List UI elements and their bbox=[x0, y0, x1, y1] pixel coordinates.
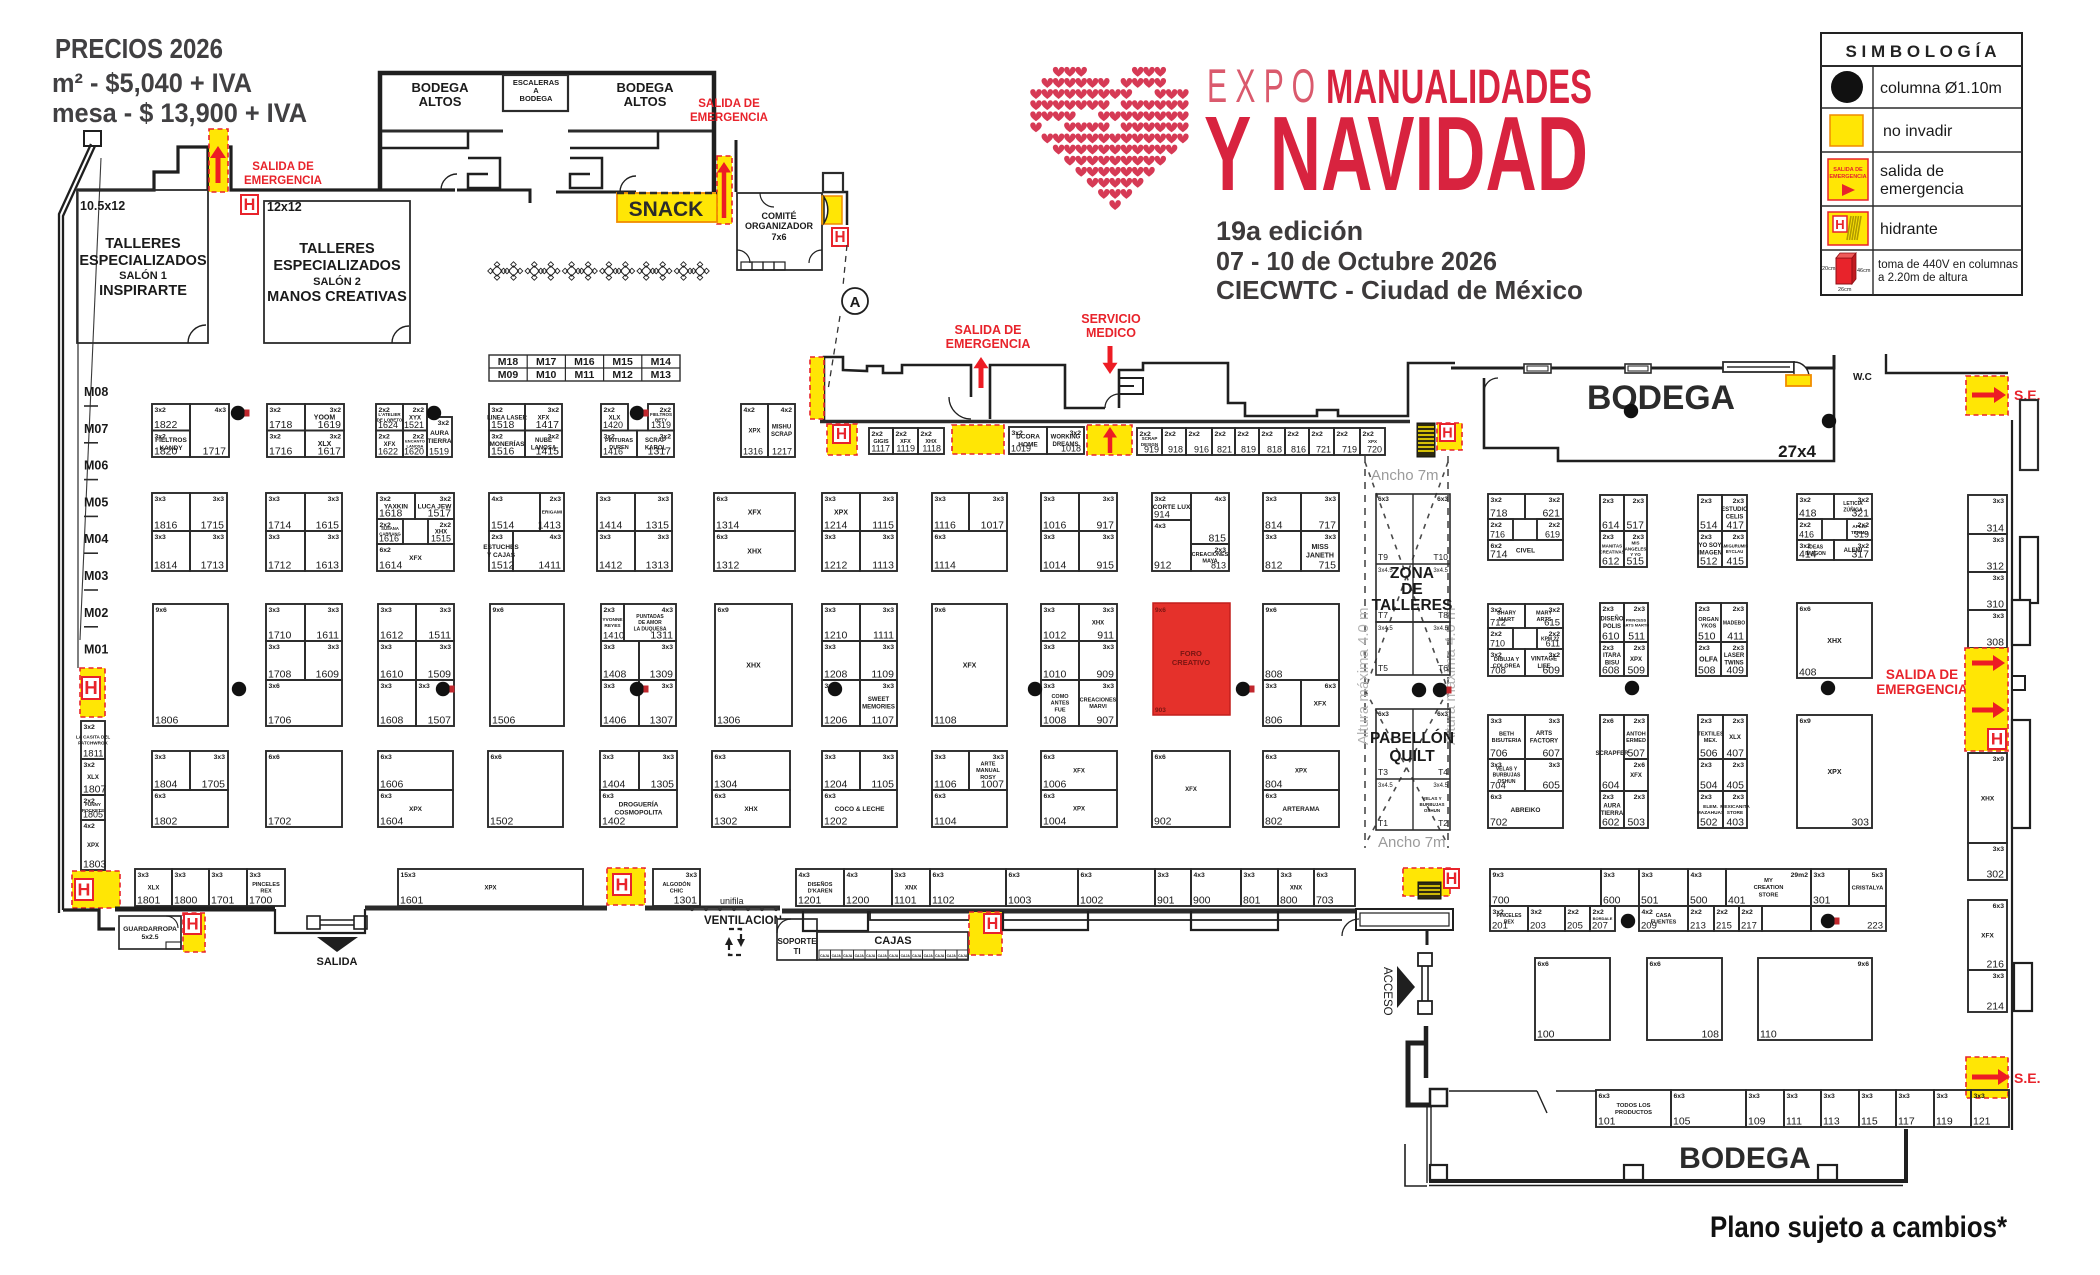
svg-text:6x3: 6x3 bbox=[1044, 754, 1056, 761]
svg-text:2x3: 2x3 bbox=[1603, 794, 1615, 801]
svg-text:806: 806 bbox=[1265, 715, 1283, 727]
svg-text:4x2: 4x2 bbox=[781, 407, 793, 414]
svg-text:SALIDA DE: SALIDA DE bbox=[955, 323, 1022, 337]
svg-text:3x3: 3x3 bbox=[1937, 1093, 1949, 1100]
svg-text:514: 514 bbox=[1700, 520, 1718, 532]
svg-text:6x6: 6x6 bbox=[269, 754, 281, 761]
svg-text:109: 109 bbox=[1748, 1116, 1766, 1128]
svg-text:2x3: 2x3 bbox=[1733, 794, 1745, 801]
svg-text:3x3: 3x3 bbox=[935, 496, 947, 503]
svg-text:LASER: LASER bbox=[1724, 653, 1745, 659]
svg-text:517: 517 bbox=[1626, 520, 1644, 532]
svg-text:STORE: STORE bbox=[1759, 892, 1779, 898]
svg-text:1118: 1118 bbox=[922, 444, 941, 454]
svg-text:213: 213 bbox=[1690, 921, 1706, 932]
svg-text:XFX: XFX bbox=[748, 509, 762, 516]
svg-text:1816: 1816 bbox=[154, 520, 178, 532]
svg-text:3x3: 3x3 bbox=[328, 607, 340, 614]
svg-text:6x3: 6x3 bbox=[1317, 872, 1329, 879]
svg-text:217: 217 bbox=[1741, 921, 1757, 932]
svg-text:6x3: 6x3 bbox=[1325, 683, 1337, 690]
svg-text:ORGANIZADOR: ORGANIZADOR bbox=[745, 221, 813, 231]
svg-text:1807: 1807 bbox=[83, 784, 107, 796]
svg-text:GUARDARROPA: GUARDARROPA bbox=[123, 926, 177, 933]
svg-text:XPX: XPX bbox=[1073, 807, 1085, 813]
svg-text:3x4.5: 3x4.5 bbox=[1378, 783, 1393, 789]
svg-text:ERMED: ERMED bbox=[1626, 738, 1646, 744]
svg-text:3x3: 3x3 bbox=[1158, 872, 1170, 879]
svg-text:CAJA: CAJA bbox=[947, 954, 957, 958]
svg-text:TODOS LOS: TODOS LOS bbox=[1616, 1103, 1650, 1109]
svg-text:H: H bbox=[1991, 730, 2003, 749]
svg-text:3x2: 3x2 bbox=[84, 724, 96, 731]
svg-text:BODEGA: BODEGA bbox=[616, 80, 674, 95]
svg-text:3x3: 3x3 bbox=[993, 496, 1005, 503]
svg-text:1018: 1018 bbox=[1061, 444, 1081, 454]
svg-text:719: 719 bbox=[1342, 445, 1357, 455]
svg-text:4x3: 4x3 bbox=[550, 534, 562, 541]
svg-text:512: 512 bbox=[1700, 556, 1718, 568]
svg-text:2x2: 2x2 bbox=[1238, 431, 1250, 438]
svg-text:6x3: 6x3 bbox=[935, 793, 947, 800]
svg-text:EMERGENCIA: EMERGENCIA bbox=[244, 175, 322, 187]
svg-text:4x3: 4x3 bbox=[847, 872, 859, 879]
svg-text:812: 812 bbox=[1265, 560, 1283, 572]
svg-text:704: 704 bbox=[1490, 781, 1506, 792]
svg-text:3x3: 3x3 bbox=[1044, 683, 1056, 690]
svg-text:207: 207 bbox=[1592, 921, 1608, 932]
svg-text:1717: 1717 bbox=[203, 446, 227, 458]
svg-text:M07: M07 bbox=[84, 422, 108, 436]
svg-text:1615: 1615 bbox=[316, 520, 340, 532]
svg-text:Ancho 7m: Ancho 7m bbox=[1378, 834, 1446, 851]
svg-text:XLX: XLX bbox=[87, 775, 99, 781]
svg-text:6x3: 6x3 bbox=[1437, 496, 1448, 503]
svg-text:REYES: REYES bbox=[604, 623, 621, 629]
svg-text:3x3: 3x3 bbox=[1103, 607, 1115, 614]
svg-text:9x3: 9x3 bbox=[1493, 872, 1505, 879]
svg-text:6x3: 6x3 bbox=[1993, 903, 2005, 910]
svg-text:M17: M17 bbox=[536, 356, 557, 368]
svg-text:H: H bbox=[836, 426, 847, 443]
svg-text:1206: 1206 bbox=[824, 715, 848, 727]
svg-text:H: H bbox=[244, 196, 256, 214]
svg-text:BURBUJAS: BURBUJAS bbox=[1493, 773, 1521, 779]
svg-text:1822: 1822 bbox=[154, 419, 178, 431]
svg-text:PABELLÓN: PABELLÓN bbox=[1370, 729, 1454, 747]
svg-text:2x3: 2x3 bbox=[604, 607, 616, 614]
svg-text:808: 808 bbox=[1265, 669, 1283, 681]
svg-text:7x6: 7x6 bbox=[771, 232, 786, 242]
svg-text:CAJA: CAJA bbox=[958, 954, 968, 958]
svg-text:TIERRA: TIERRA bbox=[427, 438, 452, 445]
svg-text:1019: 1019 bbox=[1011, 444, 1031, 454]
svg-text:1701: 1701 bbox=[211, 895, 235, 907]
svg-text:FIELTROS: FIELTROS bbox=[650, 412, 672, 417]
svg-text:FUE: FUE bbox=[1055, 708, 1066, 714]
svg-text:1801: 1801 bbox=[137, 895, 161, 907]
svg-text:M02: M02 bbox=[84, 606, 108, 620]
svg-text:1820: 1820 bbox=[154, 446, 178, 458]
svg-text:3x3: 3x3 bbox=[1549, 718, 1561, 725]
svg-text:3x3: 3x3 bbox=[1044, 496, 1056, 503]
svg-text:MEMORIES: MEMORIES bbox=[862, 705, 895, 711]
svg-text:2x2: 2x2 bbox=[1312, 431, 1324, 438]
svg-text:MANITAS: MANITAS bbox=[1602, 544, 1622, 549]
svg-text:303: 303 bbox=[1851, 817, 1869, 829]
svg-text:3x3: 3x3 bbox=[662, 683, 674, 690]
svg-text:ELEM.: ELEM. bbox=[1703, 804, 1718, 810]
svg-text:119: 119 bbox=[1936, 1116, 1953, 1128]
svg-text:CASA: CASA bbox=[1656, 913, 1672, 919]
svg-text:415: 415 bbox=[1726, 556, 1744, 568]
svg-text:1104: 1104 bbox=[934, 816, 957, 828]
svg-text:506: 506 bbox=[1700, 748, 1718, 760]
svg-text:1518: 1518 bbox=[491, 419, 515, 431]
svg-text:PINCELES: PINCELES bbox=[252, 882, 280, 888]
svg-text:ANTES: ANTES bbox=[1051, 701, 1070, 707]
svg-text:312: 312 bbox=[1986, 561, 2004, 573]
svg-text:T3: T3 bbox=[1378, 767, 1388, 777]
svg-text:209: 209 bbox=[1641, 921, 1657, 932]
svg-text:XHX: XHX bbox=[1981, 795, 1995, 802]
svg-text:1007: 1007 bbox=[981, 779, 1005, 791]
svg-text:2x2: 2x2 bbox=[1215, 431, 1227, 438]
svg-text:1408: 1408 bbox=[603, 669, 627, 681]
svg-text:ACCESO: ACCESO bbox=[1381, 967, 1393, 1016]
svg-text:MISHU: MISHU bbox=[772, 425, 791, 431]
svg-text:XNX: XNX bbox=[905, 886, 917, 892]
svg-text:2x2: 2x2 bbox=[1549, 522, 1561, 529]
svg-text:M14: M14 bbox=[651, 356, 672, 368]
svg-text:CREATIVAS: CREATIVAS bbox=[1599, 549, 1624, 554]
svg-text:1416: 1416 bbox=[603, 447, 623, 457]
svg-text:1406: 1406 bbox=[603, 715, 627, 727]
svg-text:1619: 1619 bbox=[318, 419, 342, 431]
svg-text:608: 608 bbox=[1602, 665, 1620, 677]
svg-text:3x3: 3x3 bbox=[1266, 683, 1278, 690]
svg-text:CAJA: CAJA bbox=[924, 954, 934, 958]
svg-text:S I M B O L O G Í A: S I M B O L O G Í A bbox=[1845, 42, 1996, 61]
svg-text:m² - $5,040 + IVA: m² - $5,040 + IVA bbox=[52, 68, 252, 98]
svg-text:717: 717 bbox=[1318, 520, 1336, 532]
svg-text:H: H bbox=[78, 879, 91, 899]
svg-text:FORO: FORO bbox=[1180, 649, 1202, 658]
svg-text:Ancho 7m: Ancho 7m bbox=[1371, 467, 1439, 484]
svg-text:1413: 1413 bbox=[538, 520, 562, 532]
svg-text:SWEET: SWEET bbox=[868, 697, 890, 703]
svg-text:610: 610 bbox=[1602, 631, 1620, 643]
svg-text:4x3: 4x3 bbox=[1215, 496, 1227, 503]
svg-text:XFX: XFX bbox=[1073, 769, 1085, 775]
svg-text:XFX: XFX bbox=[1185, 787, 1197, 793]
svg-text:409: 409 bbox=[1726, 665, 1744, 677]
svg-text:3x2: 3x2 bbox=[1800, 497, 1812, 504]
svg-text:3x3: 3x3 bbox=[1244, 872, 1256, 879]
svg-text:3x3: 3x3 bbox=[883, 496, 895, 503]
svg-text:1016: 1016 bbox=[1043, 520, 1067, 532]
svg-text:3x3: 3x3 bbox=[1325, 496, 1337, 503]
svg-text:1506: 1506 bbox=[492, 715, 516, 727]
svg-text:Altura máxima 4.0 m: Altura máxima 4.0 m bbox=[1355, 607, 1372, 745]
svg-text:1307: 1307 bbox=[650, 715, 674, 727]
svg-text:QUILT: QUILT bbox=[1389, 748, 1435, 765]
svg-text:1803: 1803 bbox=[83, 859, 107, 871]
svg-text:914: 914 bbox=[1154, 510, 1170, 521]
svg-text:3x3: 3x3 bbox=[155, 754, 167, 761]
svg-text:2x2: 2x2 bbox=[1691, 909, 1703, 916]
svg-text:4x3: 4x3 bbox=[1155, 523, 1167, 530]
svg-text:3x3: 3x3 bbox=[212, 872, 224, 879]
svg-text:3x3: 3x3 bbox=[269, 534, 281, 541]
svg-text:716: 716 bbox=[1490, 530, 1505, 540]
svg-text:4x3: 4x3 bbox=[1691, 872, 1703, 879]
svg-text:407: 407 bbox=[1726, 748, 1744, 760]
svg-text:1716: 1716 bbox=[269, 446, 293, 458]
svg-text:1102: 1102 bbox=[932, 895, 955, 907]
svg-text:3x3: 3x3 bbox=[825, 607, 837, 614]
svg-text:3x3: 3x3 bbox=[1993, 973, 2005, 980]
svg-text:SALIDA DE: SALIDA DE bbox=[1833, 167, 1863, 173]
svg-text:907: 907 bbox=[1096, 715, 1114, 727]
svg-text:3x2: 3x2 bbox=[548, 407, 560, 414]
svg-text:ZONA: ZONA bbox=[1390, 565, 1434, 582]
svg-text:DISEÑOS: DISEÑOS bbox=[808, 881, 833, 888]
svg-text:900: 900 bbox=[1193, 895, 1211, 907]
svg-text:3x3: 3x3 bbox=[175, 872, 187, 879]
svg-text:M04: M04 bbox=[84, 532, 108, 546]
svg-text:1012: 1012 bbox=[1043, 630, 1067, 642]
svg-text:3x3: 3x3 bbox=[1281, 872, 1293, 879]
svg-text:H: H bbox=[1835, 217, 1844, 232]
svg-text:2x3: 2x3 bbox=[1603, 645, 1615, 652]
svg-text:1417: 1417 bbox=[536, 419, 560, 431]
svg-text:100: 100 bbox=[1537, 1029, 1555, 1041]
svg-text:M03: M03 bbox=[84, 569, 108, 583]
svg-text:1515: 1515 bbox=[431, 534, 451, 544]
svg-text:801: 801 bbox=[1243, 895, 1261, 907]
svg-text:3x3: 3x3 bbox=[883, 607, 895, 614]
svg-text:SALIDA: SALIDA bbox=[317, 956, 358, 968]
svg-text:708: 708 bbox=[1490, 666, 1506, 677]
svg-text:MAZAHUAS: MAZAHUAS bbox=[1697, 810, 1725, 816]
svg-text:CAJA: CAJA bbox=[878, 954, 888, 958]
svg-text:201: 201 bbox=[1492, 921, 1508, 932]
svg-text:6x3: 6x3 bbox=[825, 793, 837, 800]
svg-text:H: H bbox=[84, 677, 98, 698]
svg-text:3x3: 3x3 bbox=[1103, 644, 1115, 651]
svg-text:FIELTROS: FIELTROS bbox=[155, 437, 187, 444]
svg-text:XPX: XPX bbox=[409, 806, 423, 813]
svg-text:2x3: 2x3 bbox=[1733, 606, 1745, 613]
svg-text:1700: 1700 bbox=[249, 895, 273, 907]
svg-text:911: 911 bbox=[1097, 630, 1114, 642]
svg-text:YO SOY: YO SOY bbox=[1698, 543, 1721, 549]
svg-text:TEXTILES: TEXTILES bbox=[1697, 731, 1724, 737]
svg-text:46cm: 46cm bbox=[1857, 268, 1871, 274]
svg-text:COMO: COMO bbox=[1051, 694, 1069, 700]
svg-text:XHX: XHX bbox=[1092, 621, 1104, 627]
svg-text:3x3: 3x3 bbox=[993, 754, 1005, 761]
svg-text:1420: 1420 bbox=[603, 420, 623, 430]
svg-text:MEDICO: MEDICO bbox=[1086, 326, 1136, 340]
svg-text:toma de 440V en columnas: toma de 440V en columnas bbox=[1878, 259, 2018, 271]
svg-text:612: 612 bbox=[1602, 556, 1620, 568]
svg-text:2x3: 2x3 bbox=[1699, 645, 1711, 652]
svg-text:YKOS: YKOS bbox=[1701, 624, 1717, 630]
svg-text:1312: 1312 bbox=[716, 560, 740, 572]
svg-text:3x2: 3x2 bbox=[380, 496, 392, 503]
svg-text:ANGELES: ANGELES bbox=[1625, 546, 1647, 551]
svg-text:3x3: 3x3 bbox=[328, 534, 340, 541]
svg-text:3x3: 3x3 bbox=[1993, 498, 2005, 505]
svg-text:MY: MY bbox=[1764, 878, 1773, 884]
svg-text:1415: 1415 bbox=[536, 446, 560, 458]
svg-text:CAJA: CAJA bbox=[855, 954, 865, 958]
svg-text:ORGAN: ORGAN bbox=[1698, 617, 1719, 623]
svg-text:3x3: 3x3 bbox=[250, 872, 262, 879]
svg-text:1514: 1514 bbox=[491, 520, 515, 532]
svg-text:3x3: 3x3 bbox=[603, 754, 615, 761]
svg-text:6x6: 6x6 bbox=[491, 754, 503, 761]
svg-text:XLX: XLX bbox=[1729, 735, 1741, 741]
svg-text:2x3: 2x3 bbox=[550, 496, 562, 503]
svg-text:1119: 1119 bbox=[896, 444, 915, 454]
svg-text:SERVICIO: SERVICIO bbox=[1081, 312, 1141, 326]
svg-text:105: 105 bbox=[1673, 1116, 1691, 1128]
svg-text:H: H bbox=[834, 229, 845, 246]
svg-text:1802: 1802 bbox=[154, 816, 178, 828]
svg-text:3x3: 3x3 bbox=[895, 872, 907, 879]
svg-text:321: 321 bbox=[1851, 508, 1869, 520]
svg-text:4x2: 4x2 bbox=[1642, 909, 1654, 916]
svg-text:1612: 1612 bbox=[380, 630, 404, 642]
svg-text:3x3: 3x3 bbox=[213, 496, 225, 503]
svg-text:1107: 1107 bbox=[871, 715, 894, 727]
svg-text:CIECWTC - Ciudad de México: CIECWTC - Ciudad de México bbox=[1216, 275, 1583, 305]
svg-text:1101: 1101 bbox=[894, 895, 917, 907]
svg-text:OLFA: OLFA bbox=[1699, 656, 1718, 663]
svg-text:1521: 1521 bbox=[404, 420, 424, 430]
svg-text:3x3: 3x3 bbox=[440, 607, 452, 614]
svg-text:M05: M05 bbox=[84, 495, 108, 509]
svg-text:111: 111 bbox=[1786, 1116, 1802, 1128]
svg-text:1620: 1620 bbox=[404, 447, 424, 457]
svg-text:619: 619 bbox=[1545, 530, 1560, 540]
svg-text:3x3: 3x3 bbox=[1642, 872, 1654, 879]
svg-text:3x3: 3x3 bbox=[1814, 872, 1826, 879]
svg-text:3x2: 3x2 bbox=[440, 496, 452, 503]
svg-text:S.E.: S.E. bbox=[2014, 1070, 2040, 1086]
svg-text:EMERGENCIA: EMERGENCIA bbox=[690, 112, 768, 124]
svg-text:3x3: 3x3 bbox=[663, 754, 675, 761]
svg-text:3x3: 3x3 bbox=[1044, 607, 1056, 614]
svg-text:6x6: 6x6 bbox=[1538, 961, 1550, 968]
svg-text:M13: M13 bbox=[651, 369, 672, 381]
svg-text:6x3: 6x3 bbox=[1491, 794, 1503, 801]
svg-text:1708: 1708 bbox=[268, 669, 292, 681]
svg-text:1811: 1811 bbox=[83, 749, 103, 760]
svg-text:OSHUN: OSHUN bbox=[1424, 808, 1440, 813]
svg-text:1705: 1705 bbox=[202, 779, 226, 791]
svg-text:3x6: 3x6 bbox=[269, 683, 281, 690]
svg-text:DE: DE bbox=[1401, 581, 1423, 598]
svg-text:4x2: 4x2 bbox=[84, 823, 96, 830]
svg-text:710: 710 bbox=[1490, 639, 1505, 649]
svg-text:712: 712 bbox=[1490, 618, 1506, 629]
svg-text:1509: 1509 bbox=[428, 669, 452, 681]
svg-text:6x3: 6x3 bbox=[603, 793, 615, 800]
svg-text:1115: 1115 bbox=[872, 520, 894, 532]
svg-text:1003: 1003 bbox=[1008, 895, 1032, 907]
svg-text:1311: 1311 bbox=[650, 630, 673, 642]
svg-text:4x3: 4x3 bbox=[492, 496, 504, 503]
svg-text:SALIDA DE: SALIDA DE bbox=[252, 161, 314, 173]
svg-text:XHX: XHX bbox=[744, 806, 758, 813]
svg-text:802: 802 bbox=[1265, 816, 1283, 828]
svg-text:3x3: 3x3 bbox=[883, 534, 895, 541]
svg-text:2x3: 2x3 bbox=[1603, 534, 1615, 541]
svg-text:YVONNE: YVONNE bbox=[602, 617, 623, 623]
svg-text:3x3: 3x3 bbox=[1993, 846, 2005, 853]
svg-text:3x2: 3x2 bbox=[270, 407, 282, 414]
svg-text:3x3: 3x3 bbox=[1103, 683, 1115, 690]
svg-text:2x3: 2x3 bbox=[1733, 498, 1745, 505]
svg-text:hidrante: hidrante bbox=[1880, 221, 1938, 238]
svg-text:515: 515 bbox=[1626, 556, 1644, 568]
svg-text:1304: 1304 bbox=[714, 779, 738, 791]
svg-text:07 - 10 de Octubre 2026: 07 - 10 de Octubre 2026 bbox=[1216, 246, 1497, 276]
svg-text:2x3: 2x3 bbox=[1699, 606, 1711, 613]
svg-text:1313: 1313 bbox=[646, 560, 670, 572]
svg-text:1714: 1714 bbox=[268, 520, 292, 532]
svg-text:1309: 1309 bbox=[650, 669, 674, 681]
svg-text:715: 715 bbox=[1318, 560, 1336, 572]
svg-text:1606: 1606 bbox=[380, 779, 404, 791]
svg-text:401: 401 bbox=[1728, 895, 1746, 907]
svg-text:1618: 1618 bbox=[379, 508, 403, 520]
svg-text:AURA: AURA bbox=[1603, 804, 1621, 810]
svg-text:1010: 1010 bbox=[1043, 669, 1067, 681]
svg-text:DE AMOR: DE AMOR bbox=[638, 620, 662, 626]
svg-text:3x4.5: 3x4.5 bbox=[1378, 626, 1393, 632]
svg-text:4x3: 4x3 bbox=[799, 872, 811, 879]
svg-text:6x3: 6x3 bbox=[1009, 872, 1021, 879]
svg-text:101: 101 bbox=[1598, 1116, 1616, 1128]
svg-text:ARTE: ARTE bbox=[981, 761, 996, 767]
svg-text:3x2: 3x2 bbox=[330, 407, 342, 414]
svg-text:3x3: 3x3 bbox=[155, 496, 167, 503]
svg-text:M12: M12 bbox=[612, 369, 633, 381]
svg-text:3x3: 3x3 bbox=[1824, 1093, 1836, 1100]
svg-text:AURA: AURA bbox=[430, 430, 449, 437]
svg-text:3x2: 3x2 bbox=[1531, 909, 1543, 916]
svg-text:ALGODÓN: ALGODÓN bbox=[662, 880, 690, 888]
svg-text:3x3: 3x3 bbox=[269, 607, 281, 614]
svg-text:1014: 1014 bbox=[1043, 560, 1067, 572]
svg-text:1111: 1111 bbox=[873, 630, 894, 642]
svg-text:BODEGA: BODEGA bbox=[411, 80, 469, 95]
svg-text:ARTERAMA: ARTERAMA bbox=[1282, 806, 1319, 813]
svg-text:XPX: XPX bbox=[748, 429, 760, 435]
svg-text:EMERGENCIA: EMERGENCIA bbox=[1876, 682, 1968, 697]
svg-text:3x3: 3x3 bbox=[825, 644, 837, 651]
svg-text:VENTILACION: VENTILACION bbox=[704, 915, 782, 927]
svg-text:6x3: 6x3 bbox=[935, 534, 947, 541]
svg-text:909: 909 bbox=[1096, 669, 1114, 681]
svg-text:9x6: 9x6 bbox=[493, 607, 505, 614]
svg-text:301: 301 bbox=[1813, 895, 1831, 907]
